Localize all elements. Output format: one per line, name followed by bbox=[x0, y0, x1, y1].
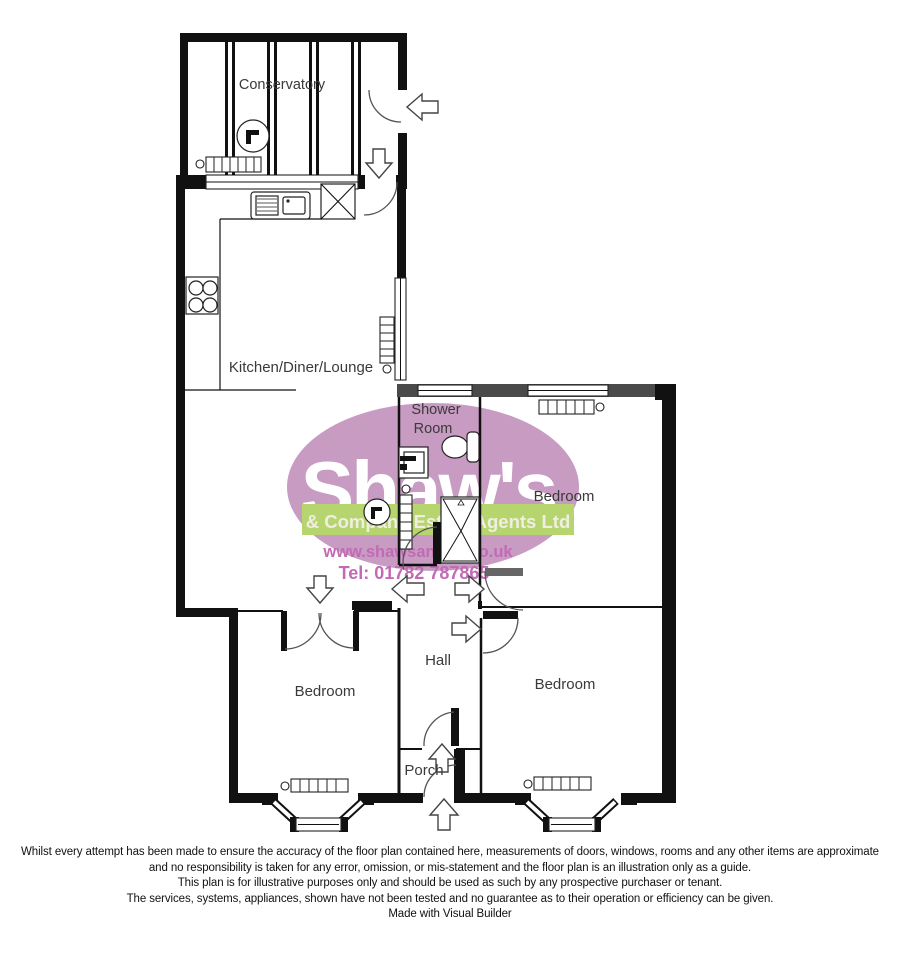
basin-icon bbox=[399, 447, 428, 478]
conservatory-mullions bbox=[227, 42, 360, 175]
radiator-bedroom-right bbox=[524, 777, 591, 790]
double-door-right-arc bbox=[319, 613, 354, 648]
boiler-icon bbox=[237, 120, 269, 152]
arrow-left-icon bbox=[407, 94, 438, 120]
label-kitchen: Kitchen/Diner/Lounge bbox=[229, 359, 373, 376]
bay-window-left bbox=[262, 793, 374, 832]
label-conservatory: Conservatory bbox=[239, 77, 326, 93]
radiator-bedroom-left bbox=[281, 779, 348, 792]
label-bedroom-bottom-right: Bedroom bbox=[535, 676, 596, 693]
label-shower-2: Room bbox=[414, 421, 453, 437]
label-porch: Porch bbox=[404, 762, 443, 779]
disclaimer-line: and no responsibility is taken for any e… bbox=[0, 861, 900, 877]
disclaimer-line: This plan is for illustrative purposes o… bbox=[0, 876, 900, 892]
arrow-down-icon bbox=[366, 149, 392, 178]
disclaimer-line: Whilst every attempt has been made to en… bbox=[0, 845, 900, 861]
porch-hall-door-arc bbox=[424, 712, 454, 746]
floor-plan-page: Shaw's & Company Estate Agents Ltd www.s… bbox=[0, 0, 900, 959]
shower-tray-icon bbox=[441, 497, 479, 563]
conservatory-door-arc bbox=[369, 90, 401, 122]
label-hall: Hall bbox=[425, 652, 451, 669]
disclaimer: Whilst every attempt has been made to en… bbox=[0, 845, 900, 923]
radiator-bedroom-top bbox=[539, 400, 604, 414]
label-shower-1: Shower bbox=[411, 402, 460, 418]
arrow-down-icon bbox=[307, 576, 333, 603]
conservatory-kitchen-door-arc bbox=[364, 182, 397, 215]
radiator-kitchen bbox=[380, 317, 394, 373]
disclaimer-line: The services, systems, appliances, shown… bbox=[0, 892, 900, 908]
label-bedroom-top-right: Bedroom bbox=[534, 488, 595, 505]
bay-window-right bbox=[515, 793, 637, 832]
floor-plan-drawing: Shaw's & Company Estate Agents Ltd www.s… bbox=[0, 0, 900, 845]
radiator-conservatory bbox=[196, 157, 261, 172]
boiler-icon-2 bbox=[364, 499, 390, 525]
radiator-shower-room bbox=[400, 485, 412, 549]
kitchen-sink bbox=[251, 192, 310, 219]
arrow-up-icon bbox=[430, 799, 458, 830]
arrow-right-icon bbox=[452, 616, 481, 642]
double-door-left-arc bbox=[285, 613, 321, 649]
label-bedroom-left: Bedroom bbox=[295, 683, 356, 700]
logo-website-text: www.shawsandco.co.uk bbox=[322, 543, 513, 561]
made-with-credit: Made with Visual Builder bbox=[0, 907, 900, 923]
bedroom-bottom-door-arc bbox=[483, 618, 518, 653]
bedroom-top-door-arc bbox=[485, 572, 523, 610]
chimney-box bbox=[321, 184, 355, 219]
hob-icon bbox=[186, 277, 218, 314]
